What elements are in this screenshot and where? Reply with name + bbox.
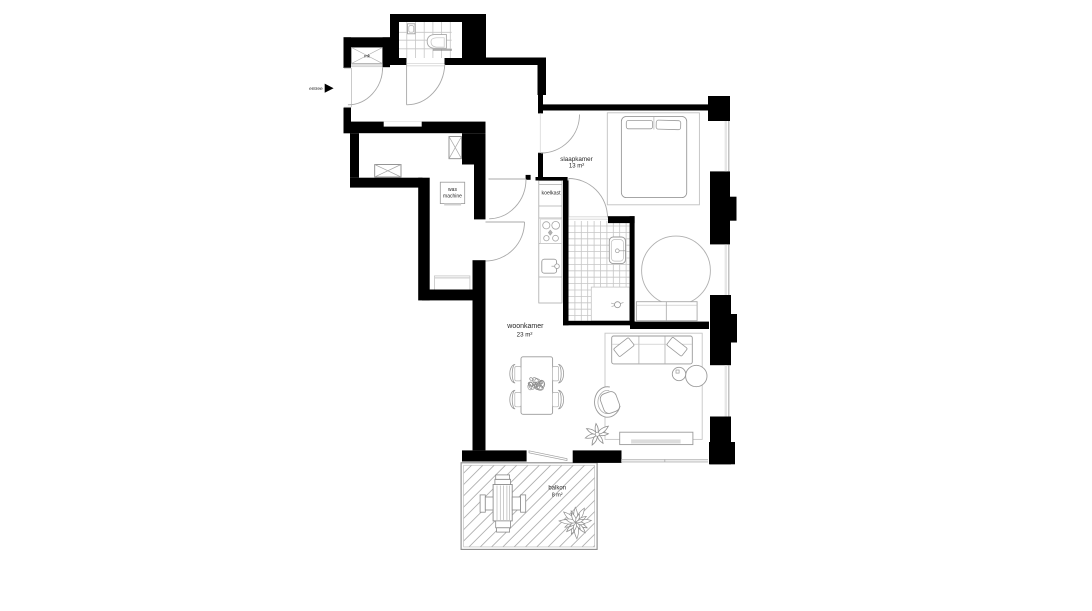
svg-text:mk: mk: [364, 54, 371, 59]
svg-text:entree: entree: [309, 86, 323, 92]
svg-text:balkon: balkon: [548, 485, 566, 491]
svg-text:8 m²: 8 m²: [552, 492, 563, 498]
svg-text:23 m²: 23 m²: [517, 331, 533, 338]
svg-text:13 m²: 13 m²: [569, 164, 584, 170]
svg-text:koelkast: koelkast: [541, 191, 561, 197]
svg-text:woonkamer: woonkamer: [506, 323, 544, 330]
svg-text:slaapkamer: slaapkamer: [560, 156, 593, 163]
svg-text:machine: machine: [443, 193, 462, 199]
svg-text:was: was: [448, 187, 457, 193]
